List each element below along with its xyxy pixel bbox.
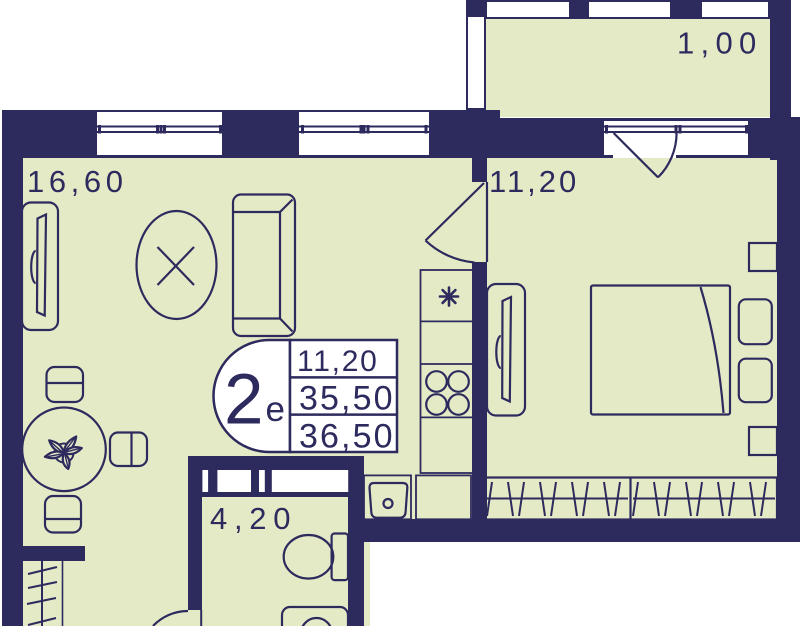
svg-text:36,50: 36,50 <box>299 418 395 456</box>
svg-text:11,20: 11,20 <box>489 164 579 199</box>
svg-text:16,60: 16,60 <box>27 164 128 199</box>
svg-text:1,00: 1,00 <box>677 26 763 61</box>
svg-text:2: 2 <box>224 361 264 440</box>
svg-text:е: е <box>266 390 285 429</box>
svg-text:4,20: 4,20 <box>210 501 297 536</box>
svg-text:35,50: 35,50 <box>299 380 395 418</box>
svg-text:11,20: 11,20 <box>297 345 379 378</box>
